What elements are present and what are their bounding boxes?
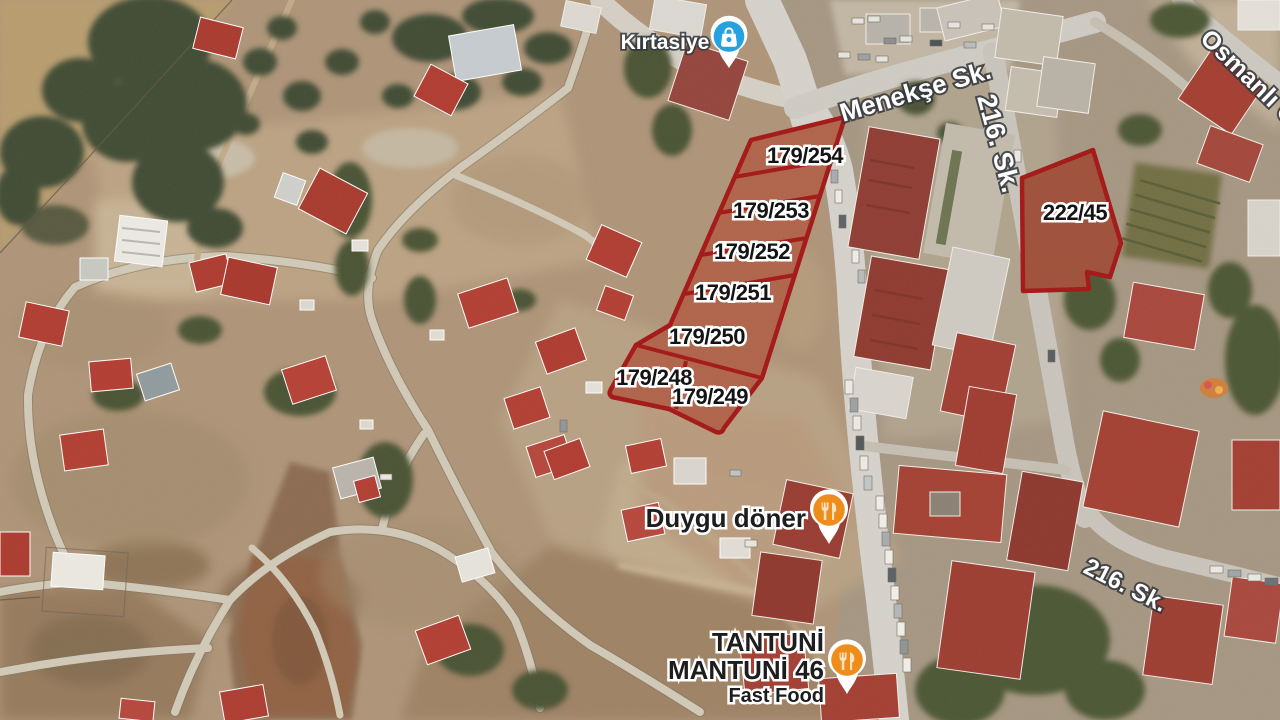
svg-text:TANTUNİ: TANTUNİ xyxy=(712,627,824,657)
svg-text:179/251: 179/251 xyxy=(695,280,771,305)
svg-text:Kırtasiye: Kırtasiye xyxy=(621,31,710,54)
svg-text:179/250: 179/250 xyxy=(669,324,745,349)
svg-text:179/254: 179/254 xyxy=(767,143,844,168)
svg-text:MANTUNİ 46: MANTUNİ 46 xyxy=(668,655,824,685)
svg-text:179/253: 179/253 xyxy=(733,198,809,223)
svg-text:Fast Food: Fast Food xyxy=(728,685,824,707)
svg-text:179/249: 179/249 xyxy=(672,384,748,409)
svg-text:Duygu döner: Duygu döner xyxy=(646,503,806,533)
svg-text:179/252: 179/252 xyxy=(714,239,790,264)
svg-text:222/45: 222/45 xyxy=(1043,200,1108,225)
